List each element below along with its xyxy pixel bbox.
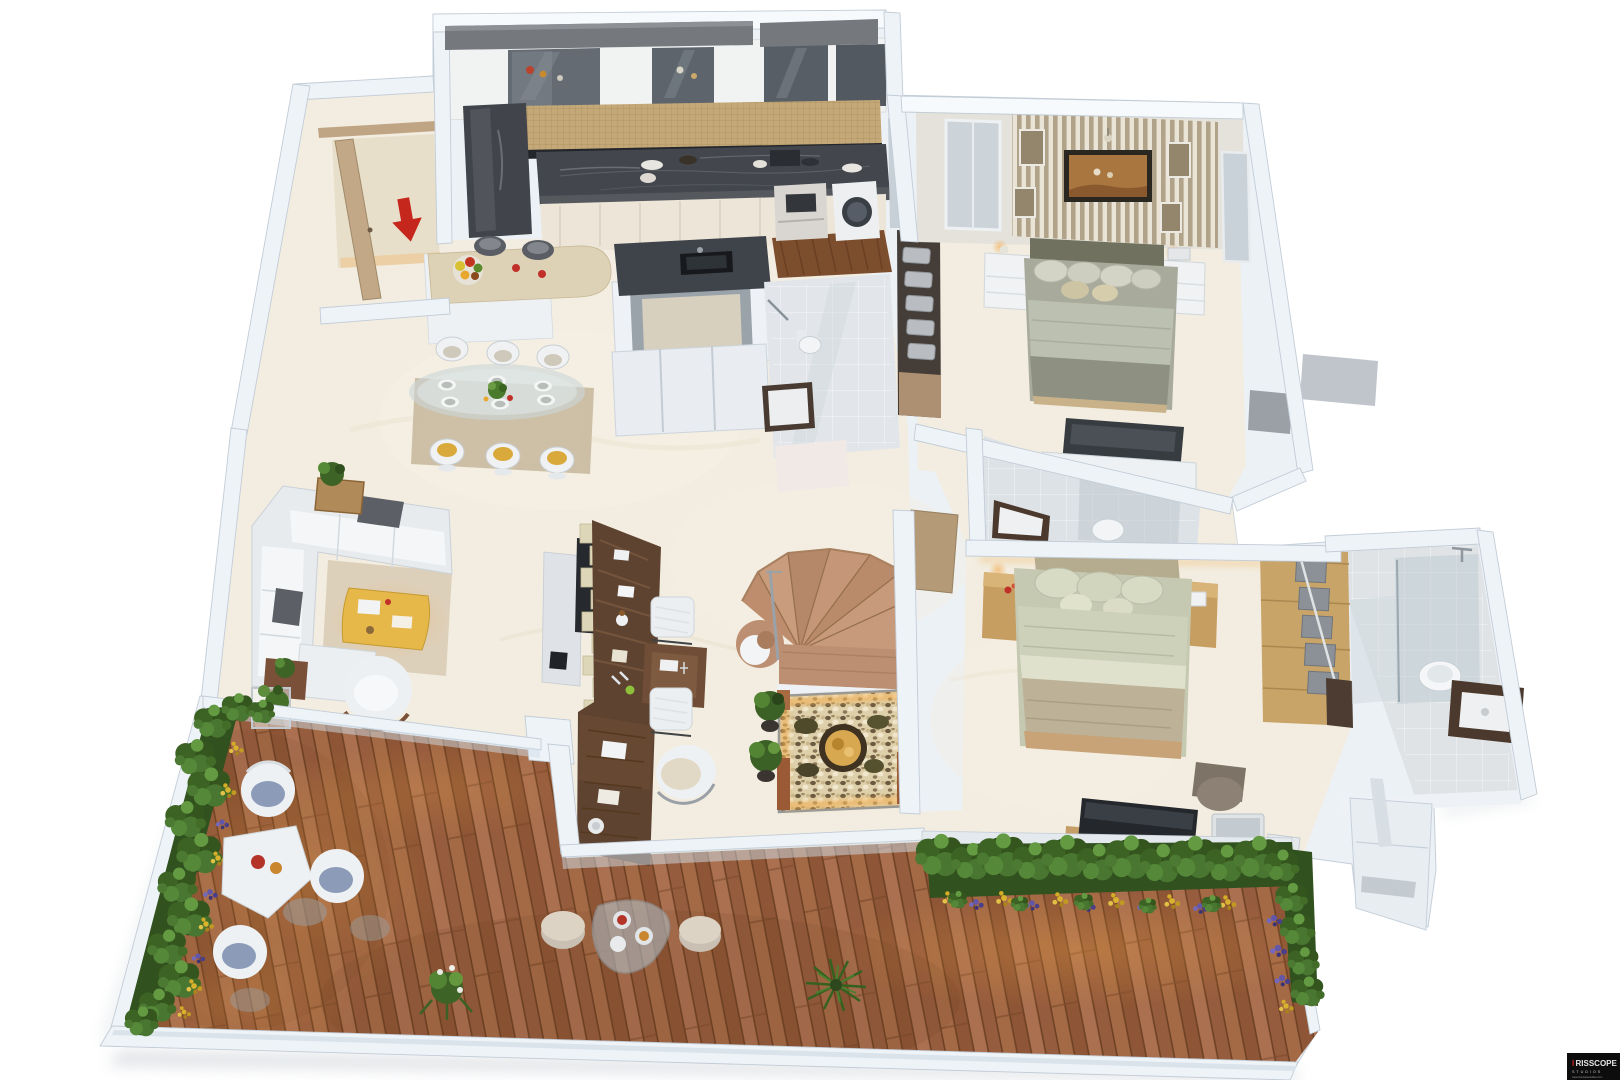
svg-text:RISSCOPE: RISSCOPE (1576, 1059, 1618, 1068)
svg-text:www.irisscopestudios.com: www.irisscopestudios.com (1572, 1075, 1602, 1079)
svg-text:STUDIOS: STUDIOS (1572, 1070, 1602, 1074)
svg-text:I: I (1572, 1059, 1574, 1068)
